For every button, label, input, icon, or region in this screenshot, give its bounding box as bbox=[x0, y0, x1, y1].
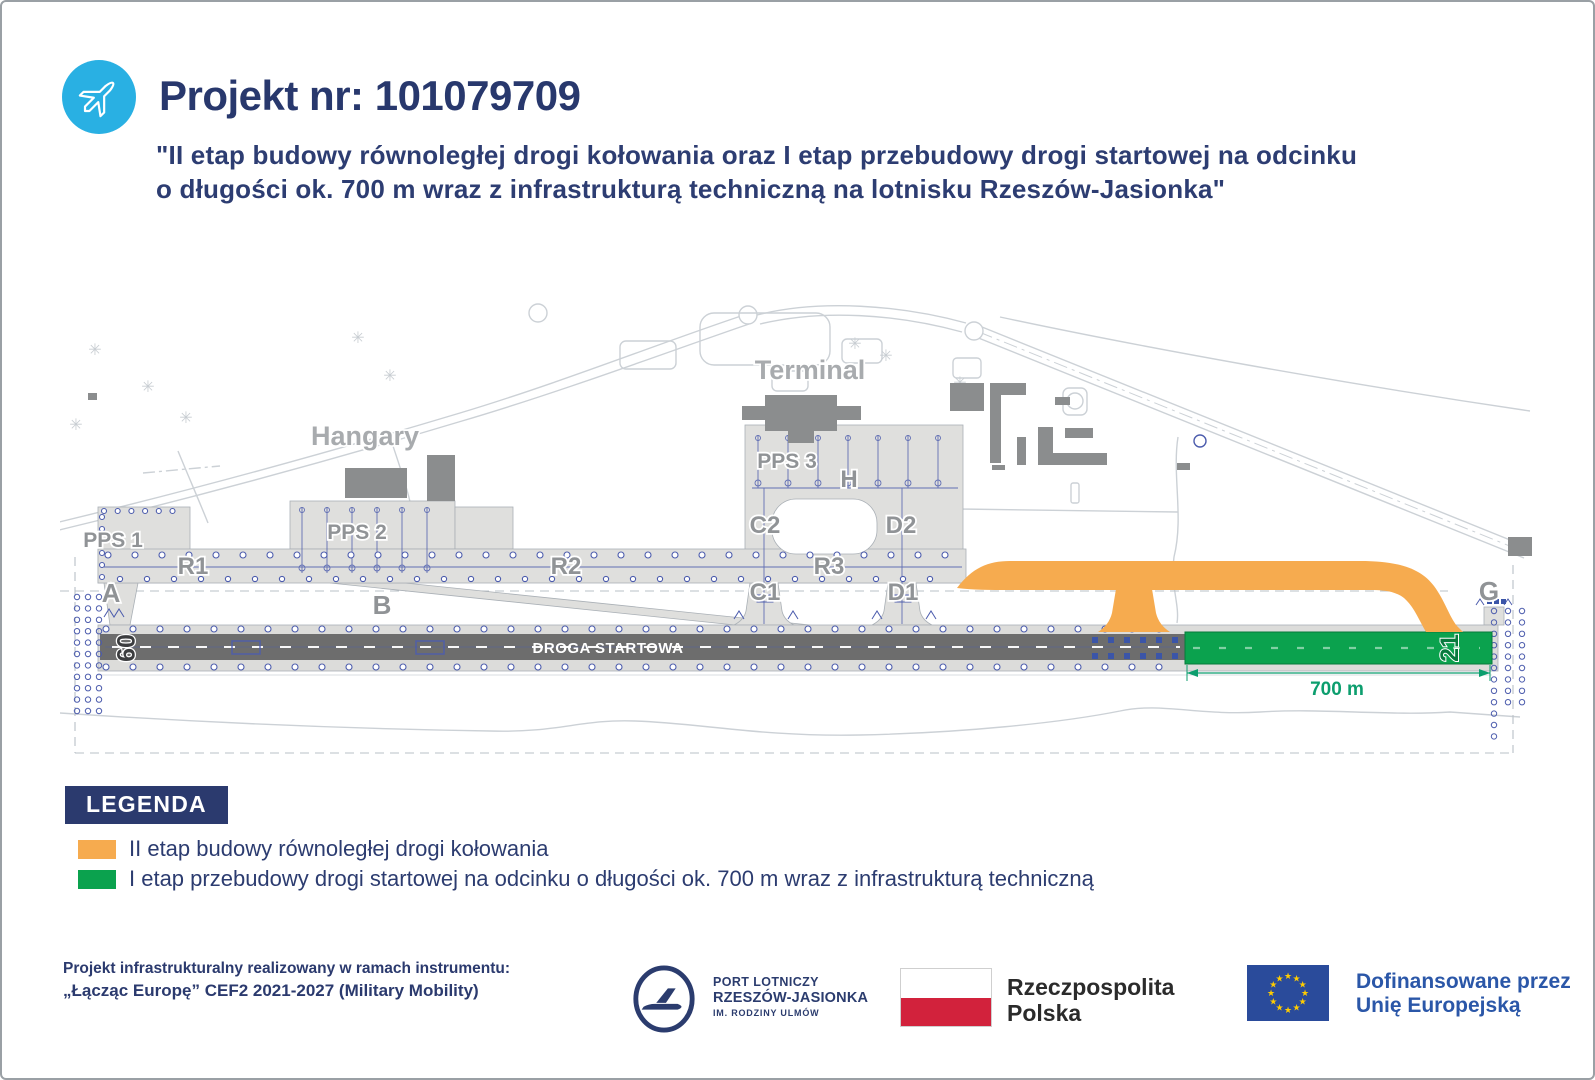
subtitle-line-2: o długości ok. 700 m wraz z infrastruktu… bbox=[156, 174, 1225, 204]
airport-logo-line-1: PORT LOTNICZY bbox=[713, 975, 868, 989]
terminal-building bbox=[765, 395, 837, 431]
airport-logo-line-3: IM. RODZINY ULMÓW bbox=[713, 1008, 868, 1018]
misc-markings bbox=[104, 595, 1512, 619]
label-c1: C1 bbox=[750, 579, 781, 606]
legend-swatch-orange bbox=[78, 840, 116, 859]
svg-text:★: ★ bbox=[1269, 997, 1277, 1007]
new-taxiway-overlay bbox=[957, 561, 1463, 632]
poland-line-1: Rzeczpospolita bbox=[1007, 974, 1174, 1000]
label-a: A bbox=[102, 578, 121, 608]
label-pps1: PPS 1 bbox=[83, 529, 143, 552]
legend-label-runway: I etap przebudowy drogi startowej na odc… bbox=[129, 866, 1094, 892]
legend-swatch-green bbox=[78, 870, 116, 889]
program-note: Projekt infrastrukturalny realizowany w … bbox=[63, 960, 510, 1001]
label-d1: D1 bbox=[888, 579, 919, 606]
legend-title: LEGENDA bbox=[65, 786, 228, 824]
approach-lights-left bbox=[74, 594, 101, 713]
runway-threshold-09: 09 bbox=[111, 634, 139, 662]
svg-text:✳: ✳ bbox=[351, 330, 364, 347]
site-plan-svg: ✳✳✳ ✳✳✳ ✳✳✳ bbox=[60, 255, 1535, 775]
label-b: B bbox=[373, 590, 392, 620]
airport-logo: PORT LOTNICZY RZESZÓW-JASIONKA IM. RODZI… bbox=[630, 962, 868, 1036]
hangar-building bbox=[345, 468, 407, 498]
label-runway-name: DROGA STARTOWA bbox=[533, 640, 684, 657]
eu-line-2: Unię Europejską bbox=[1356, 994, 1521, 1017]
airport-logo-icon bbox=[630, 962, 698, 1036]
dimension-label: 700 m bbox=[1310, 679, 1364, 700]
svg-text:★: ★ bbox=[1275, 973, 1283, 983]
airport-site-plan: ✳✳✳ ✳✳✳ ✳✳✳ bbox=[60, 255, 1535, 775]
legend-item-taxiway: II etap budowy równoległej drogi kołowan… bbox=[78, 836, 548, 862]
taxiway-b bbox=[330, 583, 810, 625]
legend-item-runway: I etap przebudowy drogi startowej na odc… bbox=[78, 866, 1094, 892]
project-title: Projekt nr: 101079709 bbox=[159, 72, 580, 120]
label-pps3: PPS 3 bbox=[757, 450, 817, 473]
label-r1: R1 bbox=[178, 553, 209, 580]
label-g: G bbox=[1479, 576, 1499, 606]
poland-flag bbox=[900, 968, 992, 1027]
svg-text:✳: ✳ bbox=[141, 379, 154, 396]
svg-text:★: ★ bbox=[1284, 1005, 1292, 1015]
eu-flag: ★★★ ★★★ ★★★ ★★★ bbox=[1247, 965, 1329, 1021]
poland-block: Rzeczpospolita Polska bbox=[900, 968, 1174, 1027]
svg-text:✳: ✳ bbox=[88, 342, 101, 359]
svg-text:✳: ✳ bbox=[879, 348, 892, 365]
runway-threshold-21: 21 bbox=[1436, 634, 1464, 662]
plane-icon bbox=[62, 60, 136, 134]
label-h: H bbox=[840, 466, 857, 493]
label-r2: R2 bbox=[551, 553, 582, 580]
label-d2: D2 bbox=[886, 512, 917, 539]
airport-logo-line-2: RZESZÓW-JASIONKA bbox=[713, 990, 868, 1006]
label-hangary: Hangary bbox=[311, 421, 419, 451]
eu-line-1: Dofinansowane przez bbox=[1356, 970, 1571, 993]
eu-block: ★★★ ★★★ ★★★ ★★★ Dofinansowane przez Unię… bbox=[1247, 965, 1571, 1021]
legend-label-taxiway: II etap budowy równoległej drogi kołowan… bbox=[129, 836, 548, 862]
svg-text:✳: ✳ bbox=[848, 336, 861, 353]
program-line-1: Projekt infrastrukturalny realizowany w … bbox=[63, 960, 510, 978]
svg-text:✳: ✳ bbox=[383, 368, 396, 385]
label-c2: C2 bbox=[750, 512, 781, 539]
taxiway-g bbox=[1484, 607, 1504, 625]
label-r3: R3 bbox=[814, 553, 845, 580]
svg-text:★: ★ bbox=[1284, 971, 1292, 981]
svg-text:✳: ✳ bbox=[69, 417, 82, 434]
project-subtitle: "II etap budowy równoległej drogi kołowa… bbox=[156, 138, 1556, 206]
program-line-2: „Łącząc Europę” CEF2 2021-2027 (Military… bbox=[63, 981, 510, 1001]
svg-text:★: ★ bbox=[1267, 988, 1275, 998]
label-pps2: PPS 2 bbox=[327, 521, 387, 544]
subtitle-line-1: "II etap budowy równoległej drogi kołowa… bbox=[156, 140, 1357, 170]
label-terminal: Terminal bbox=[755, 355, 866, 385]
svg-text:✳: ✳ bbox=[179, 410, 192, 427]
hangar-building-2 bbox=[427, 455, 455, 501]
plane-icon-glyph bbox=[74, 72, 124, 122]
poland-line-2: Polska bbox=[1007, 1000, 1081, 1026]
svg-text:★: ★ bbox=[1292, 1003, 1300, 1013]
